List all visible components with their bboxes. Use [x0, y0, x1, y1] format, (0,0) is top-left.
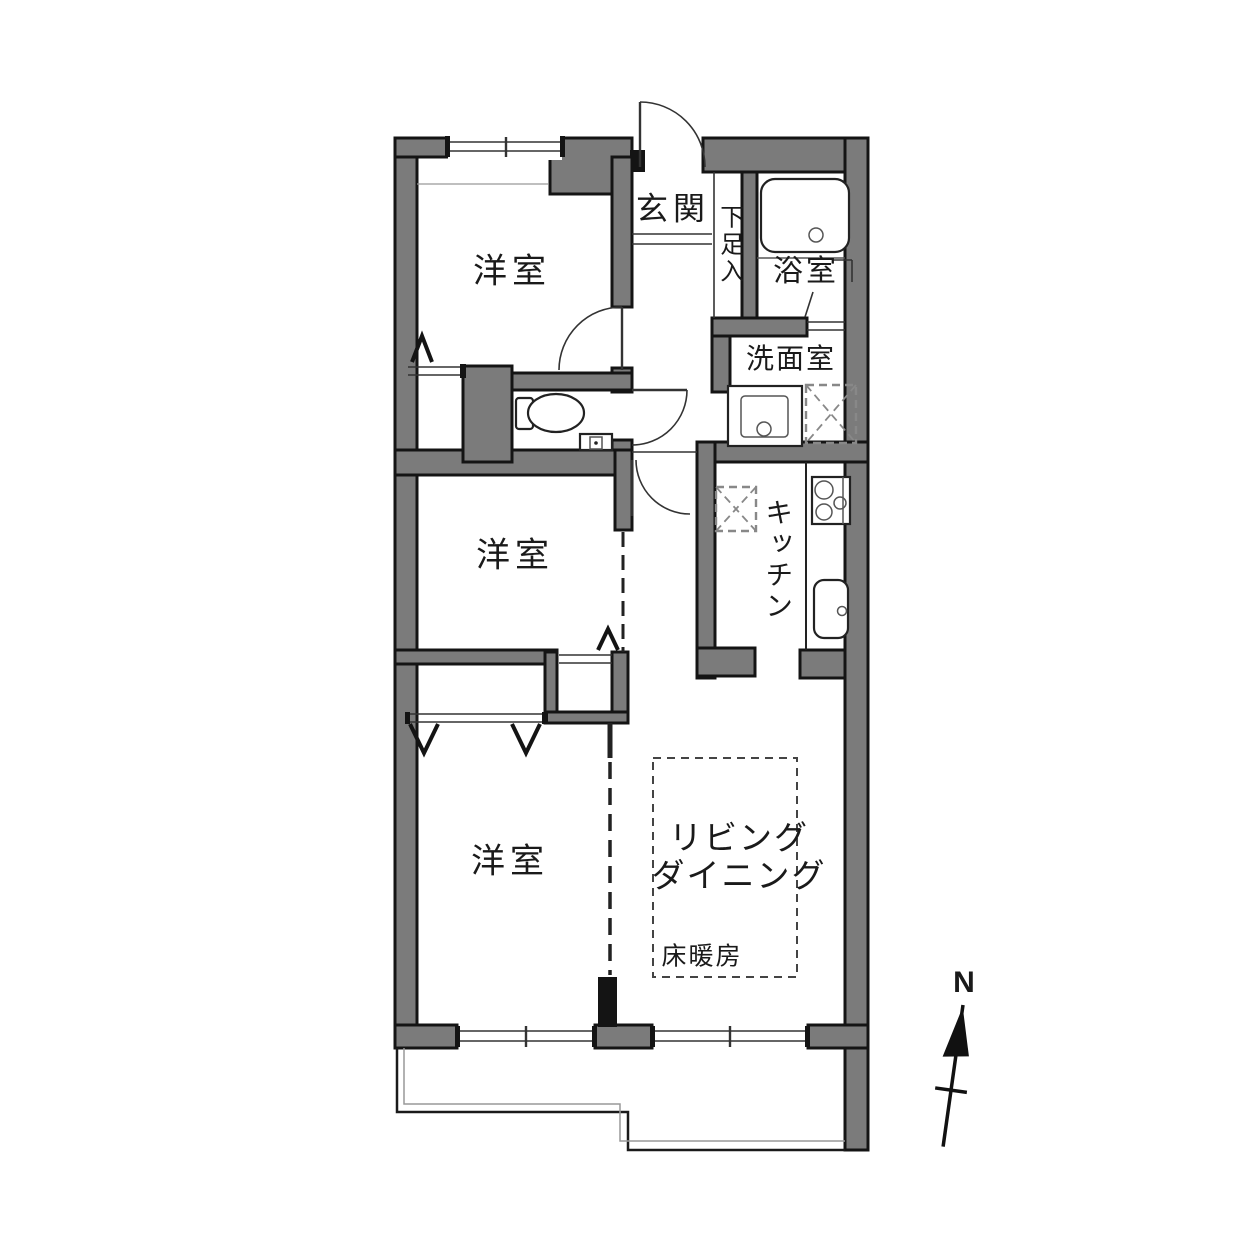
living-label: リビング	[652, 819, 827, 857]
north-arrow	[927, 1003, 979, 1149]
balcony-outline	[397, 1048, 845, 1150]
kitchen-counter	[806, 462, 850, 650]
room-label-shoe-cabinet: 下足入	[715, 205, 743, 286]
room-label-western-room-3: 洋室	[471, 842, 549, 881]
north-label: N	[953, 966, 975, 1001]
floor-plan-drawing	[0, 0, 1252, 1252]
room-label-kitchen: キッチン	[761, 498, 793, 622]
room-label-washroom: 洗面室	[746, 343, 836, 375]
room-label-western-room-1: 洋室	[473, 252, 551, 291]
room-label-living-dining: リビング ダイニング	[652, 819, 827, 895]
top-window	[445, 135, 565, 160]
vanity-sink	[728, 386, 802, 446]
dining-label: ダイニング	[652, 857, 827, 895]
living-door	[632, 452, 697, 516]
refrigerator-space	[716, 487, 756, 531]
room-label-western-room-2: 洋室	[476, 536, 554, 575]
room1-door	[559, 307, 622, 370]
sliding-partitions	[610, 532, 623, 975]
bathtub	[757, 179, 849, 258]
entrance-door	[640, 102, 705, 167]
room-label-floor-heating: 床暖房	[661, 943, 742, 972]
toilet-fixture	[516, 394, 612, 450]
room-label-bathroom: 浴室	[773, 255, 839, 290]
bottom-wall-and-windows	[395, 977, 868, 1048]
toilet-door	[632, 390, 687, 445]
floor-plan: 洋室 玄関 下足入 浴室 洗面室 洋室 キッチン 洋室 リビング ダイニング 床…	[0, 0, 1252, 1252]
room-label-entrance: 玄関	[636, 191, 710, 228]
